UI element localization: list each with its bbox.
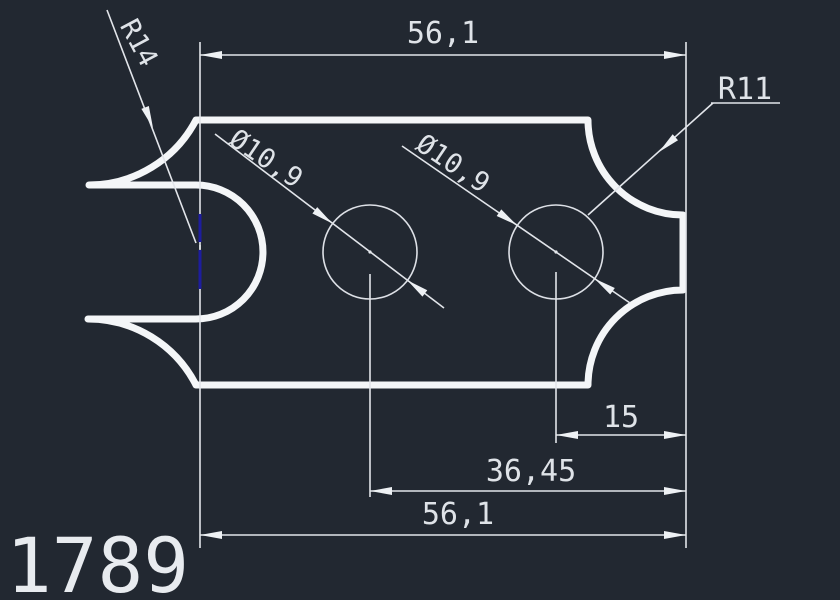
dim-bottom-width-text: 56,1 <box>422 497 494 532</box>
dim-top-width-text: 56,1 <box>407 16 479 51</box>
arrowhead <box>664 51 686 59</box>
drawing-canvas[interactable]: 56,1 R14 R11 Ø10,9 <box>0 0 840 600</box>
part-outline-path <box>88 120 683 385</box>
arrowhead <box>141 106 156 129</box>
arrowhead <box>370 487 392 495</box>
arrowhead <box>200 531 222 539</box>
dim-top-width[interactable]: 56,1 <box>200 16 686 548</box>
part-outline[interactable] <box>88 120 683 385</box>
dim-corner-radius[interactable]: R11 <box>588 72 780 215</box>
dim-left-radius-text: R14 <box>113 14 163 72</box>
arrowhead <box>200 51 222 59</box>
dim-hole2-offset-text: 15 <box>603 400 639 435</box>
dim-hole1-diameter-text: Ø10,9 <box>223 123 308 194</box>
arrowhead <box>664 431 686 439</box>
leader-line <box>588 103 713 215</box>
dim-bottom-width[interactable]: 56,1 <box>200 497 686 539</box>
arrowhead <box>556 431 578 439</box>
arrowhead <box>497 209 520 228</box>
arrowhead <box>664 531 686 539</box>
part-number-label[interactable]: 1789 <box>6 521 189 600</box>
arrowhead <box>664 487 686 495</box>
dim-hole1-offset-text: 36,45 <box>486 454 576 489</box>
dim-hole2-diameter-text: Ø10,9 <box>410 128 495 199</box>
cad-viewport: 56,1 R14 R11 Ø10,9 <box>0 0 840 600</box>
dim-left-radius[interactable]: R14 <box>107 10 196 243</box>
dim-corner-radius-text: R11 <box>718 72 772 107</box>
